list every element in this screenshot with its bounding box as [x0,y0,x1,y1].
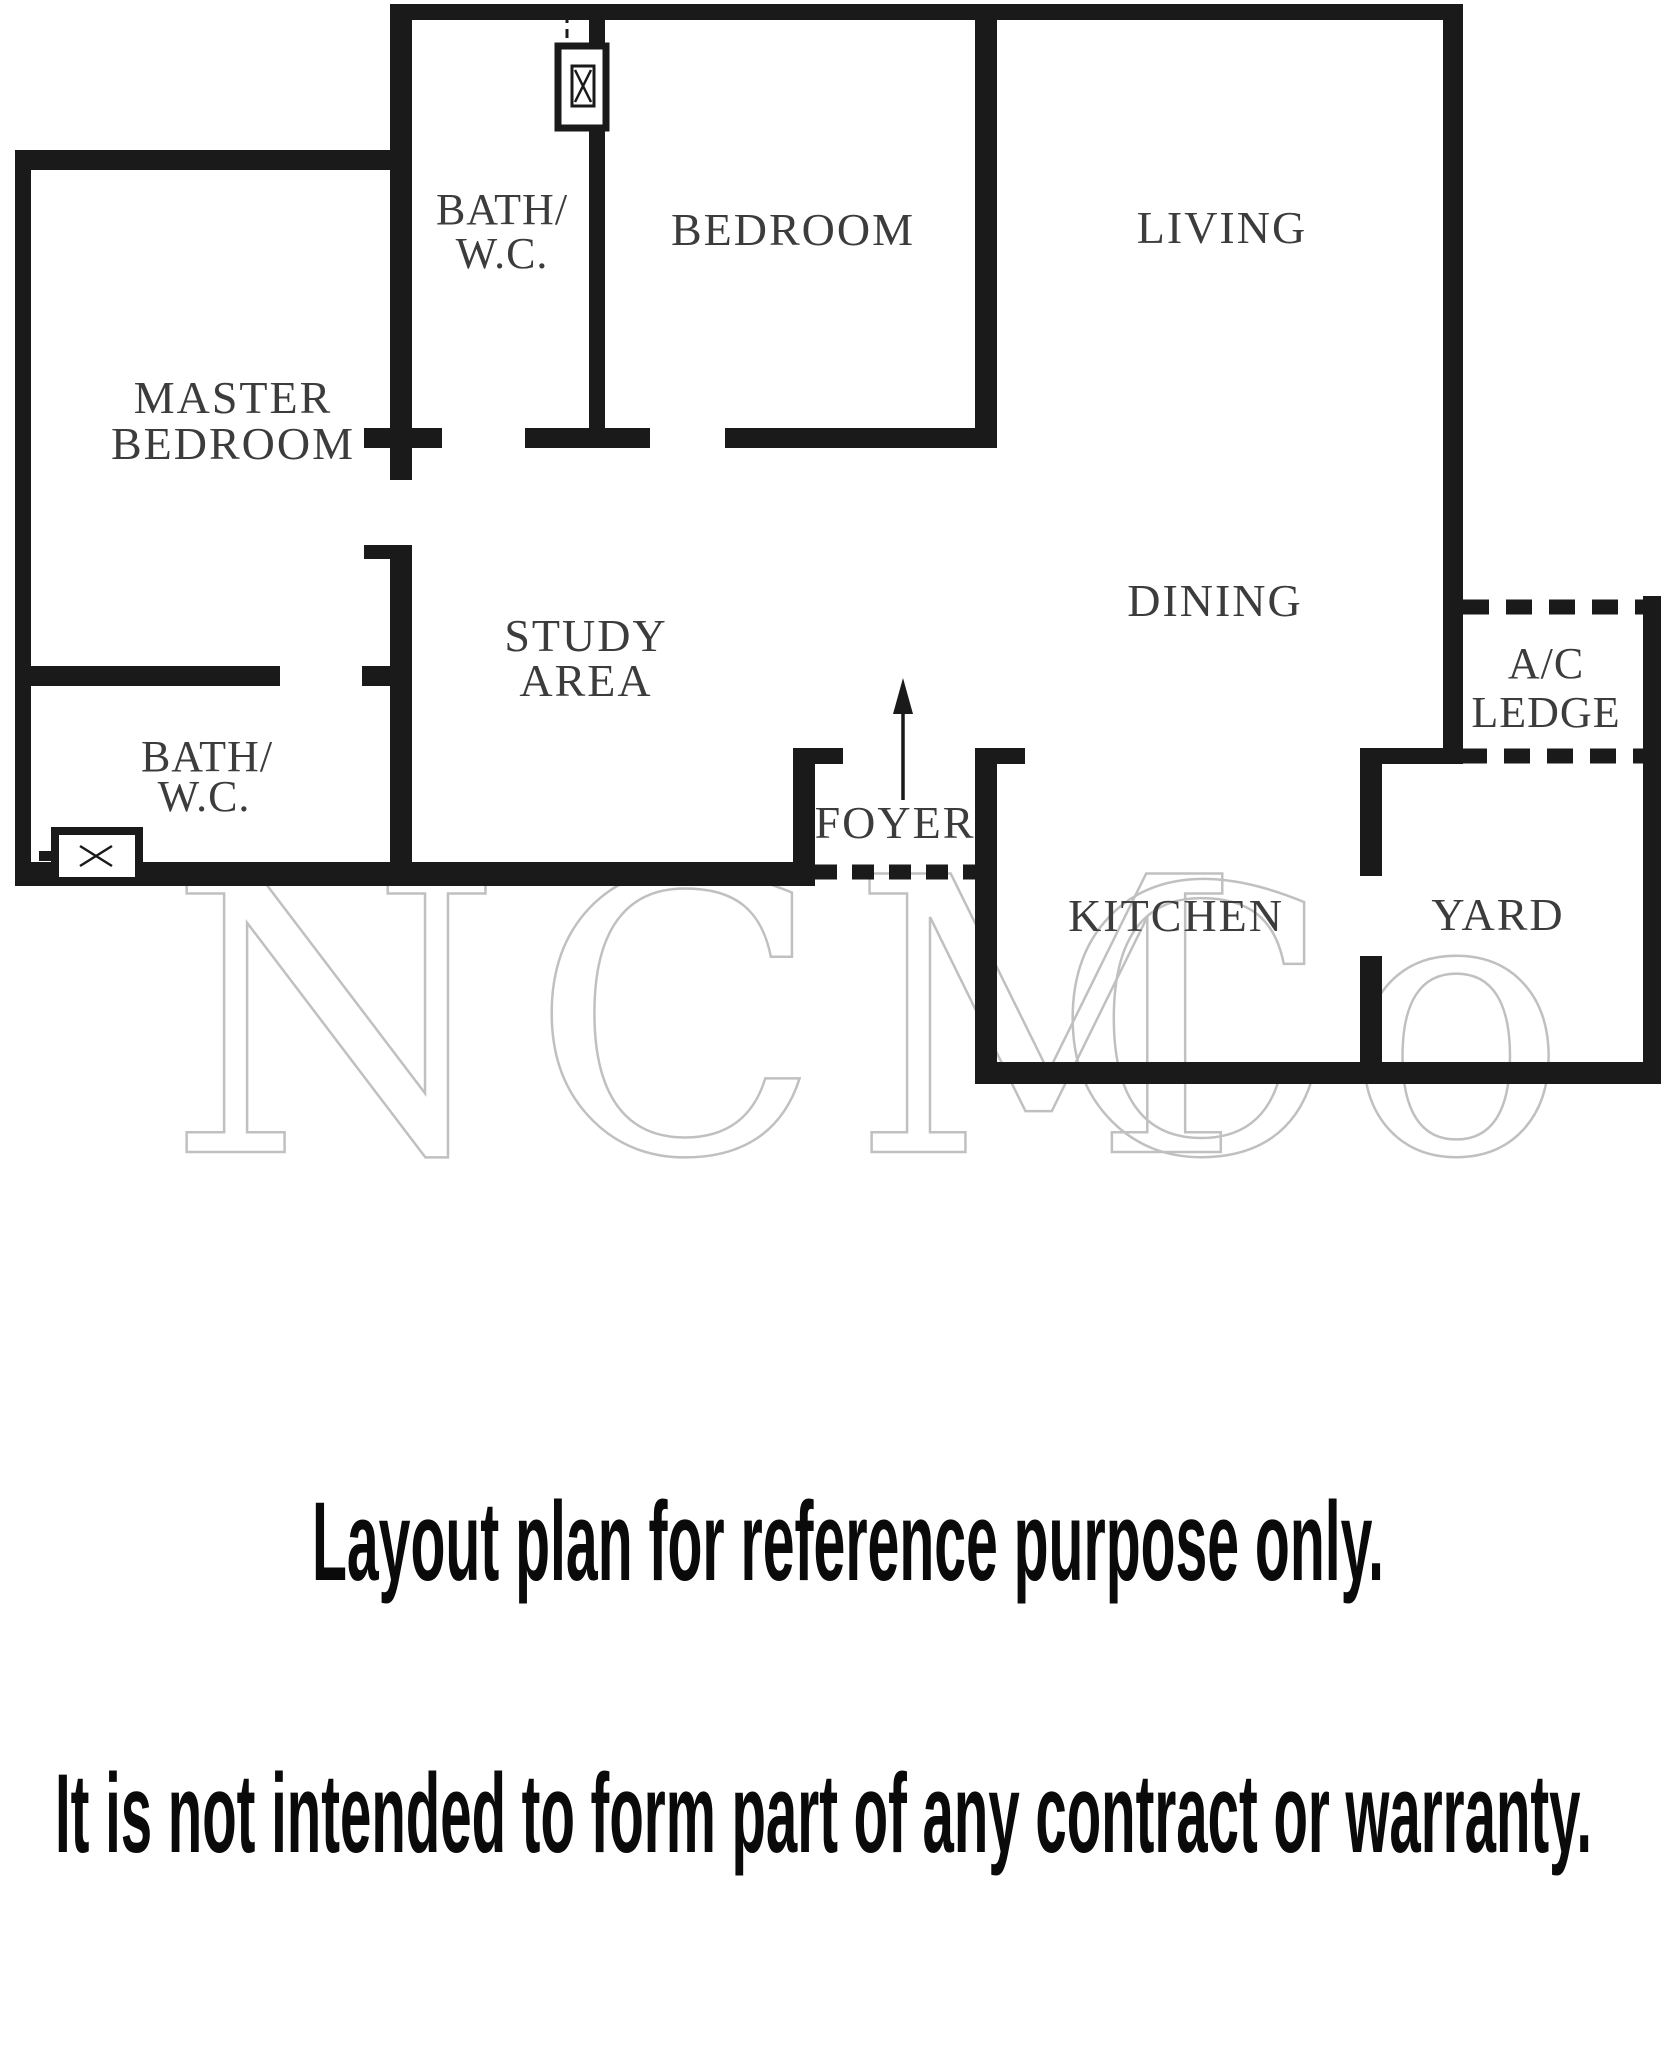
wall-bedroom-bottom-seg [725,428,982,448]
room-label-living: LIVING [1137,202,1307,253]
watermark-co: Co [1052,810,1579,1239]
wall-kitchen-left-tick [997,748,1025,764]
wall-bath2-top [15,666,280,686]
wall-master-right-lower [390,545,412,886]
room-label-bath-wc-lower-line2: W.C. [158,772,251,821]
room-label-kitchen: KITCHEN [1068,890,1284,941]
duct-fixture-icon [558,46,606,128]
wall-master-right-upper [390,4,412,480]
entrance-arrow-icon [893,678,913,800]
wall-top-outer [390,4,1463,20]
room-label-study-area-line2: AREA [519,655,652,706]
room-label-ac-ledge-line2: LEDGE [1471,688,1620,737]
room-label-bath-wc-top-line1: BATH/ [436,185,568,234]
room-label-ac-ledge-line1: A/C [1508,639,1584,688]
wall-yard-left-lower [1360,956,1382,1084]
room-label-foyer: FOYER [815,797,976,848]
wall-ledge-yard-right [1643,596,1661,1084]
room-label-dining: DINING [1127,575,1303,626]
disclaimer: Layout plan for reference purpose only. … [55,1479,1592,1876]
wall-master-door-jamb [364,545,390,559]
room-label-bath-wc-top-line2: W.C. [456,229,549,278]
wall-foyer-left-tick [815,748,843,764]
room-label-yard: YARD [1431,889,1564,940]
wall-bath1-bottom-tick [364,428,442,448]
room-label-master-bedroom-line2: BEDROOM [111,418,355,469]
room-label-study-area-line1: STUDY [504,610,667,661]
wall-bath1-bedroom-main [589,126,605,448]
disclaimer-line2: It is not intended to form part of any c… [55,1751,1592,1876]
wall-bath1-bottom-seg [525,428,650,448]
wall-bedroom-living [975,4,997,448]
room-label-master-bedroom-line1: MASTER [134,372,333,423]
floor-plan-page: NCM Co [0,0,1671,2048]
wall-master-top [15,150,412,170]
wall-foyer-left-stub [793,748,815,886]
wall-left-outer [15,150,31,886]
wall-bath2-door-jamb [362,666,390,686]
room-label-bedroom: BEDROOM [671,204,915,255]
window-fixture-icon [55,831,139,881]
wall-kitchen-yard-bottom [975,1062,1661,1084]
wall-kitchen-left [975,748,997,1084]
disclaimer-line1: Layout plan for reference purpose only. [312,1479,1384,1604]
wall-yard-left-upper [1360,748,1382,876]
wall-ledge-jog [1360,748,1463,764]
floor-plan-drawing: NCM Co [0,0,1671,2048]
wall-right-outer [1443,4,1463,764]
